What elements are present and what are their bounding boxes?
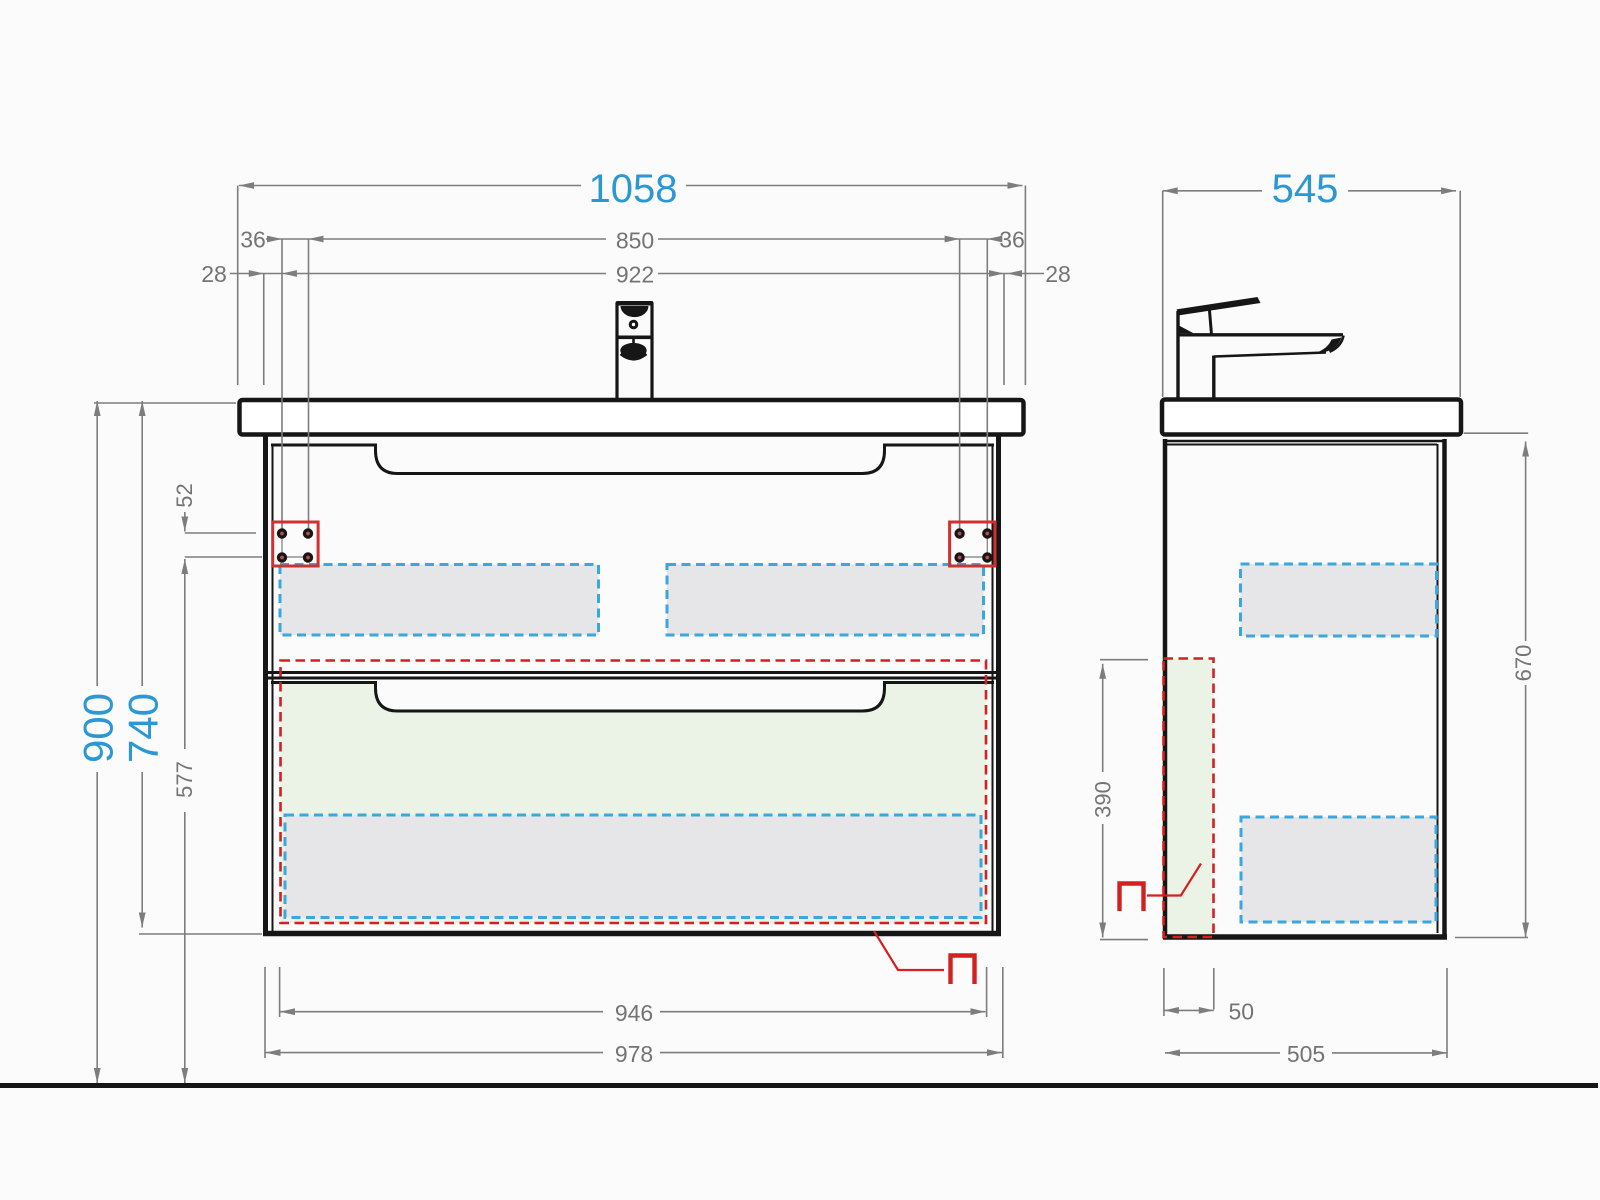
svg-text:922: 922 <box>616 262 654 288</box>
svg-text:505: 505 <box>1287 1041 1325 1067</box>
svg-text:900: 900 <box>75 693 122 763</box>
svg-text:577: 577 <box>172 761 197 798</box>
svg-text:36: 36 <box>999 227 1025 253</box>
svg-text:740: 740 <box>120 693 167 763</box>
svg-text:36: 36 <box>240 227 266 253</box>
svg-text:670: 670 <box>1511 645 1536 682</box>
svg-text:1058: 1058 <box>589 167 678 211</box>
svg-text:50: 50 <box>1229 999 1255 1025</box>
svg-text:390: 390 <box>1091 781 1116 818</box>
svg-text:850: 850 <box>616 228 654 254</box>
svg-text:28: 28 <box>201 261 227 287</box>
svg-text:946: 946 <box>615 1000 653 1026</box>
svg-text:28: 28 <box>1045 261 1071 287</box>
svg-text:52: 52 <box>172 483 197 507</box>
svg-text:978: 978 <box>615 1041 653 1067</box>
svg-text:545: 545 <box>1272 167 1339 211</box>
